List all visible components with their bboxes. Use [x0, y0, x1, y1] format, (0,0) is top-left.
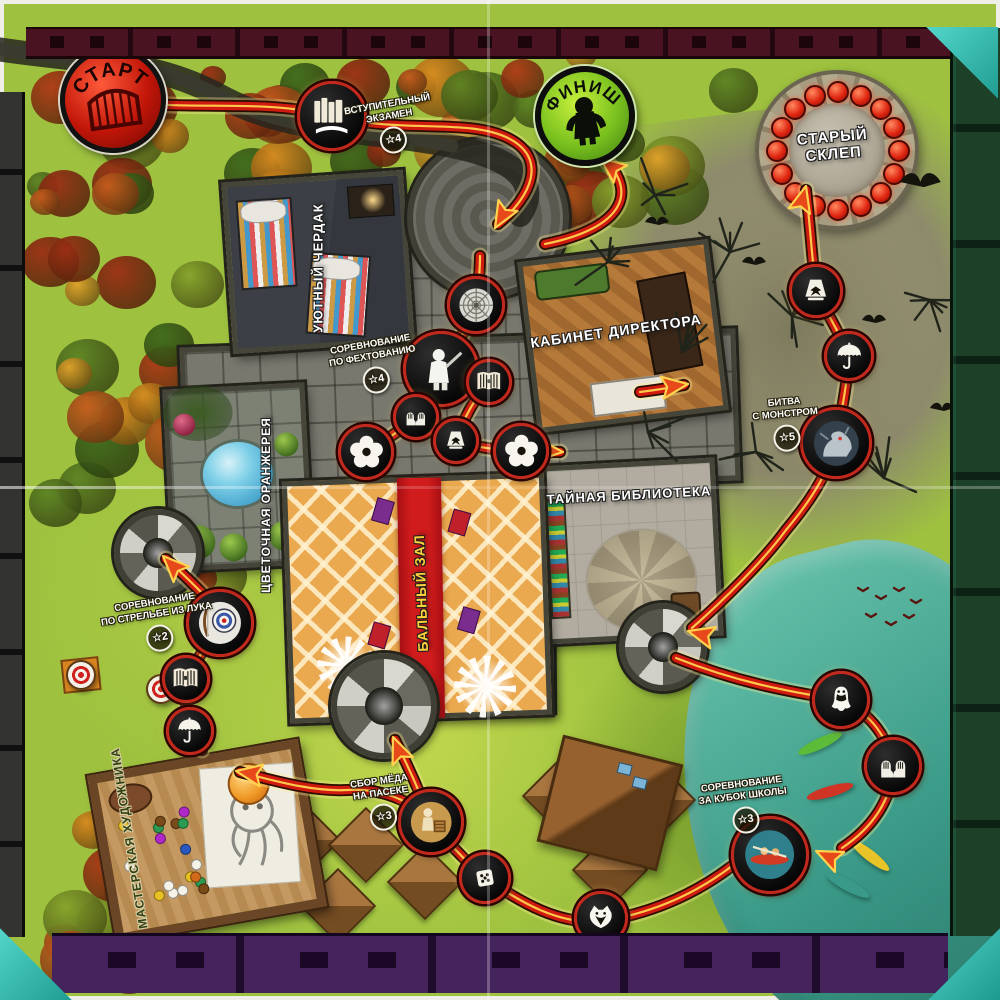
- path-node-bell: [789, 264, 843, 318]
- hands-icon: [401, 402, 431, 432]
- event-star-badge: ☆3: [731, 805, 761, 835]
- path-node-umbrella: [166, 707, 214, 755]
- game-board: СТАРЫЙ СКЛЕПУЮТНЫЙ ЧЕРДАККАБИНЕТ ДИРЕКТО…: [0, 0, 1000, 1000]
- start-label: СТАРТ: [66, 54, 154, 101]
- path-node-hands: [864, 737, 922, 795]
- cat-icon: [583, 900, 619, 936]
- path-node-penguin: [812, 671, 870, 729]
- edge-tiles-left: [0, 92, 25, 937]
- path-node-flower: [493, 423, 549, 479]
- monster-silhouette-icon: [563, 95, 608, 147]
- path-node-hands: [393, 394, 439, 440]
- path-node-mandala: [447, 276, 505, 334]
- bell-icon: [798, 273, 834, 309]
- event-star-badge: ☆4: [378, 124, 409, 155]
- bell-icon: [441, 426, 471, 456]
- event-star-badge: ☆3: [369, 801, 399, 831]
- location-label-old-crypt: СТАРЫЙ СКЛЕП: [796, 126, 870, 167]
- finish-badge: ФИНИШ: [530, 61, 640, 171]
- event-star-badge: ☆4: [361, 364, 392, 395]
- event-label-honey-gathering: СБОР МЁДАНА ПАСЕКЕ☆3: [349, 772, 414, 834]
- fencer-icon: [415, 343, 467, 395]
- fold-crease: [487, 0, 490, 1000]
- path-node-umbrella: [824, 331, 874, 381]
- beekeeper-icon: [409, 800, 453, 844]
- fold-crease: [0, 486, 1000, 489]
- path-node-dice-flag: [459, 852, 511, 904]
- event-star-badge: ☆2: [145, 622, 176, 653]
- umbrella-icon: [833, 340, 866, 373]
- umbrella-icon: [174, 715, 205, 746]
- hands-icon: [874, 747, 912, 785]
- flower-icon: [348, 434, 385, 471]
- kayaks-icon: [743, 828, 796, 881]
- path-node-flower: [338, 424, 394, 480]
- path-node-gates-book: [162, 655, 210, 703]
- path-node-bell: [433, 418, 479, 464]
- event-star-badge: ☆5: [773, 423, 802, 452]
- gates-book-icon: [170, 663, 201, 694]
- edge-tiles-bottom: [52, 933, 948, 993]
- svg-text:СТАРТ: СТАРТ: [66, 54, 154, 101]
- dice-flag-icon: [468, 861, 502, 895]
- flower-icon: [503, 433, 540, 470]
- event-label-text: БИТВАС МОНСТРОМ: [751, 394, 819, 424]
- penguin-icon: [822, 681, 860, 719]
- edge-tiles-right: [950, 28, 1000, 936]
- event-label-school-cup: СОРЕВНОВАНИЕЗА КУБОК ШКОЛЫ☆3: [697, 773, 792, 838]
- location-label-cozy-attic: УЮТНЫЙ ЧЕРДАК: [312, 203, 327, 332]
- event-label-monster-battle: БИТВАС МОНСТРОМ☆5: [751, 394, 821, 454]
- location-label-flower-greenhouse: ЦВЕТОЧНАЯ ОРАНЖЕРЕЯ: [260, 417, 274, 593]
